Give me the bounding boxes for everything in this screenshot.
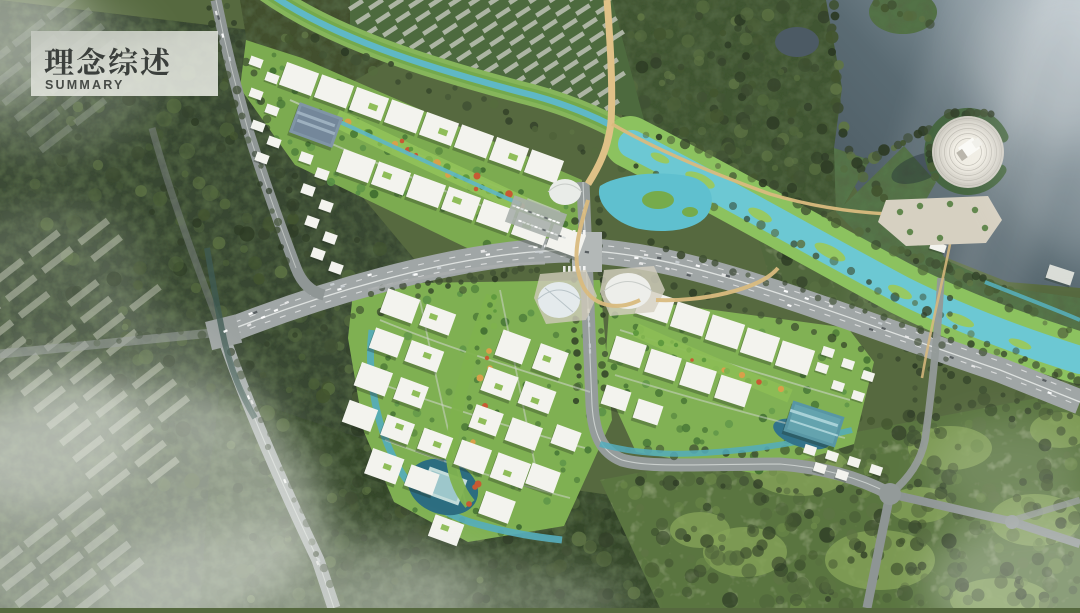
svg-text:SUMMARY: SUMMARY — [45, 78, 125, 92]
